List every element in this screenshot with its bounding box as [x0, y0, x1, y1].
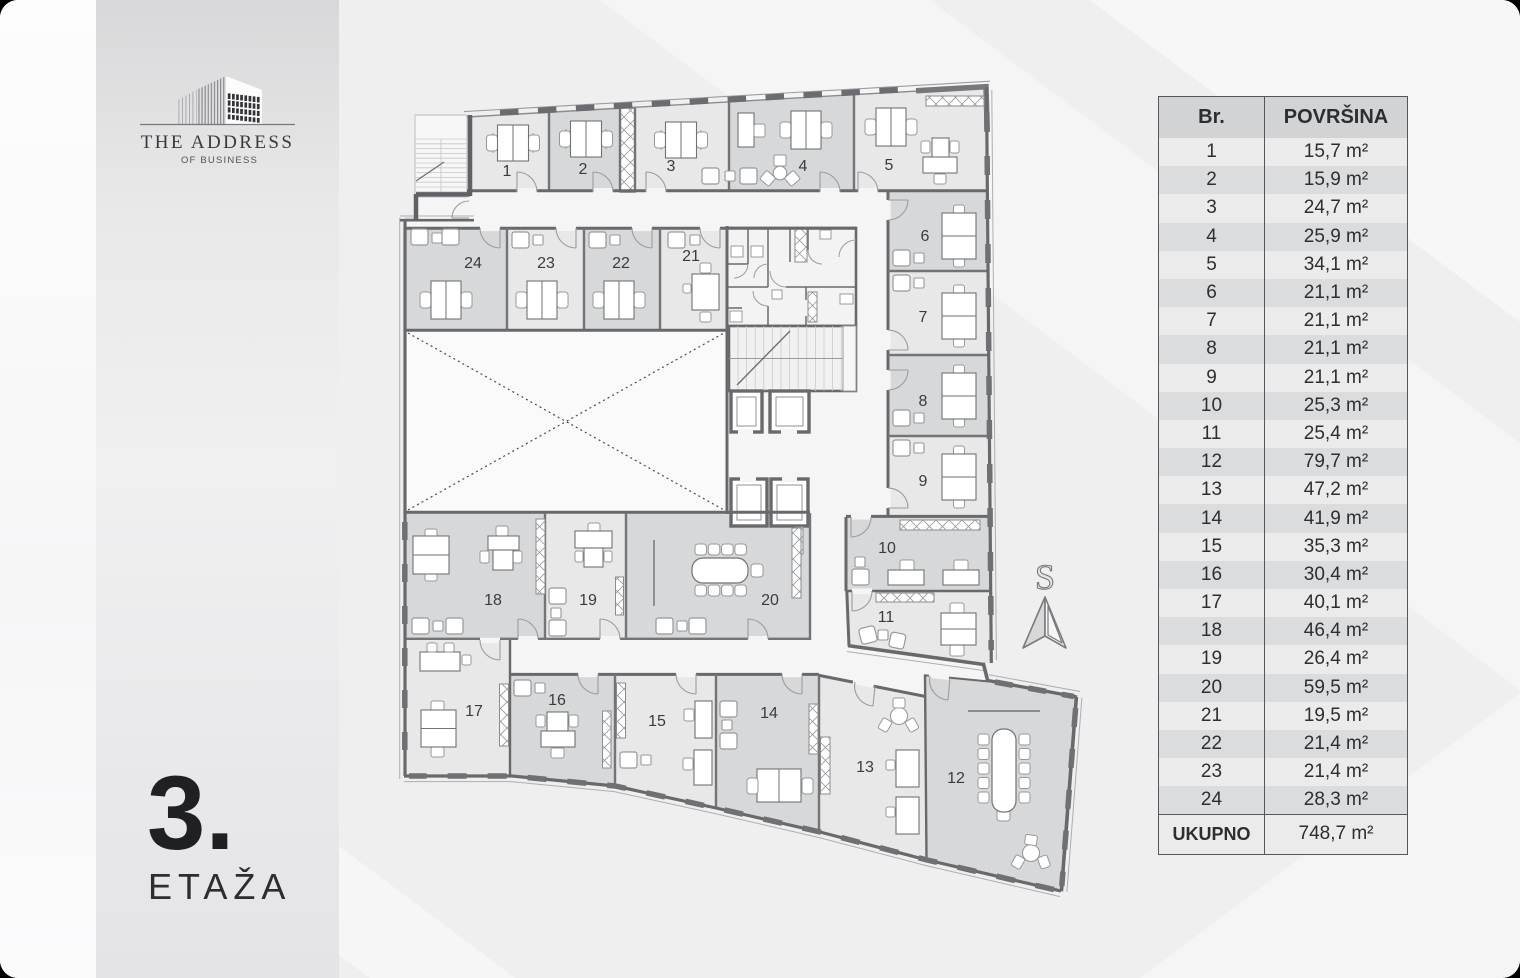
svg-text:15: 15	[648, 713, 666, 730]
svg-text:6: 6	[921, 228, 930, 245]
svg-text:11: 11	[878, 609, 895, 626]
svg-text:17: 17	[465, 703, 483, 720]
svg-text:21: 21	[682, 248, 700, 265]
svg-text:16: 16	[548, 692, 566, 709]
svg-text:18: 18	[484, 592, 502, 609]
svg-text:9: 9	[919, 473, 928, 490]
svg-text:23: 23	[537, 255, 555, 272]
svg-text:22: 22	[612, 255, 630, 272]
svg-text:5: 5	[885, 157, 894, 174]
svg-text:8: 8	[919, 393, 928, 410]
svg-text:20: 20	[761, 592, 779, 609]
svg-text:12: 12	[947, 770, 965, 787]
svg-text:7: 7	[919, 309, 928, 326]
svg-text:10: 10	[878, 540, 896, 557]
svg-text:3: 3	[667, 158, 676, 175]
svg-text:4: 4	[799, 158, 808, 175]
svg-text:14: 14	[760, 705, 778, 722]
svg-text:19: 19	[579, 592, 597, 609]
svg-text:2: 2	[579, 161, 588, 178]
svg-text:S: S	[1035, 557, 1055, 597]
svg-text:13: 13	[856, 759, 874, 776]
svg-text:24: 24	[464, 255, 482, 272]
svg-text:1: 1	[503, 163, 512, 180]
